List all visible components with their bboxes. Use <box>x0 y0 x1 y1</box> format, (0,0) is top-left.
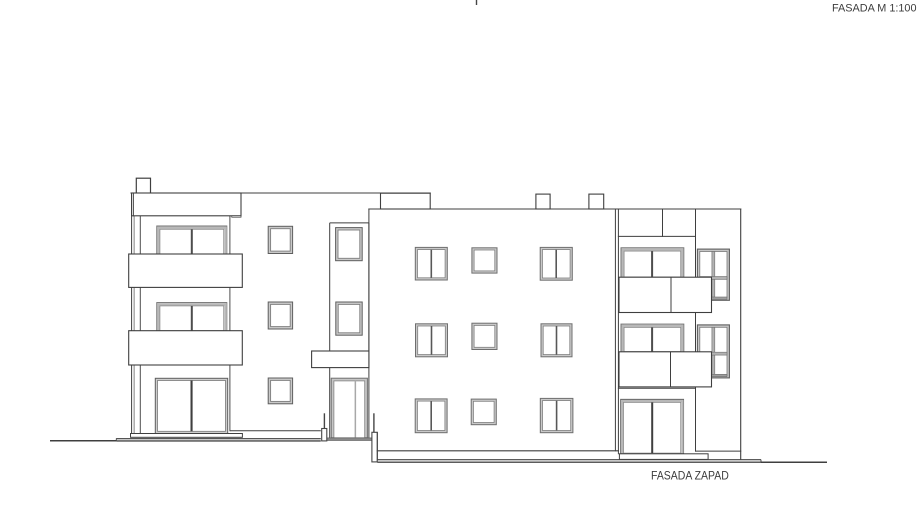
svg-text:FASADA ZAPAD: FASADA ZAPAD <box>651 469 729 483</box>
svg-text:FASADA M 1:100: FASADA M 1:100 <box>832 3 917 15</box>
